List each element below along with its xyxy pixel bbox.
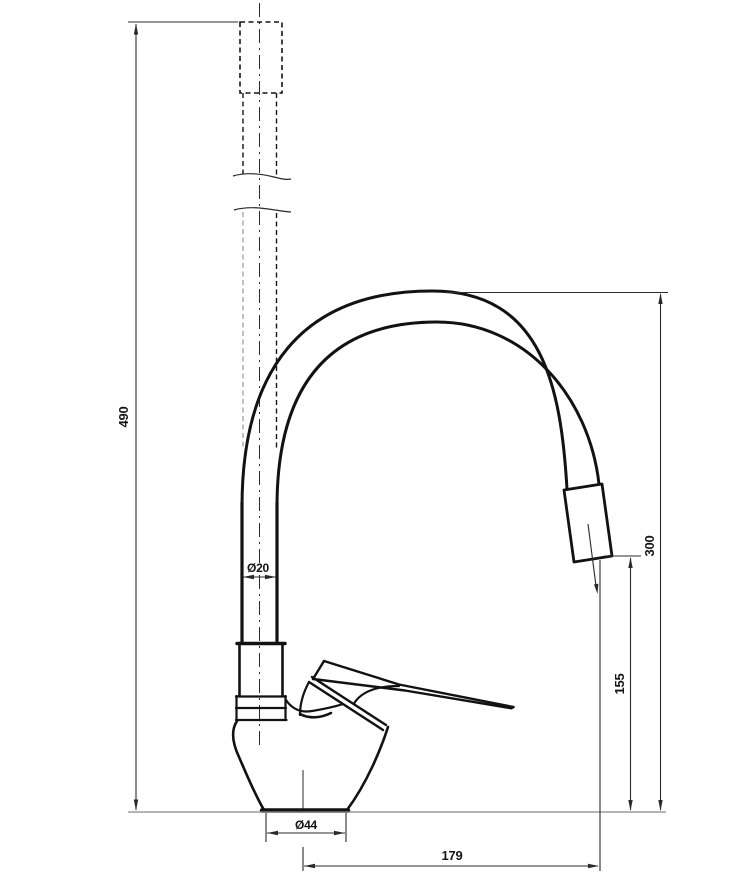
arrowhead-179-right — [588, 864, 599, 868]
arrowhead-44-left — [267, 831, 278, 835]
break-line-bottom — [234, 208, 291, 212]
arrowhead-490-top — [134, 24, 138, 35]
dimension-490 — [128, 22, 238, 810]
arrowhead-155-bottom — [628, 800, 632, 811]
technical-drawing-sheet: 490 300 155 179 Ø44 Ø20 — [0, 0, 743, 892]
spout-inner-curve — [277, 322, 599, 507]
label-outlet-height: 155 — [612, 673, 627, 694]
arrowhead-20-right — [265, 575, 276, 579]
body-right-edge — [347, 727, 388, 810]
body-shoulder-curve — [300, 713, 331, 717]
outlet-under-curve — [286, 700, 343, 712]
nozzle — [564, 484, 612, 562]
label-base-diameter: Ø44 — [295, 818, 318, 832]
arrowhead-20-left — [243, 575, 254, 579]
cap-left-edge — [313, 661, 324, 679]
water-arrowhead — [594, 584, 598, 594]
arrowhead-179-left — [304, 864, 315, 868]
arrowhead-300-top — [658, 293, 662, 304]
hose-end-rect — [240, 22, 282, 93]
arrowhead-490-bottom — [134, 800, 138, 811]
arrowhead-300-bottom — [658, 800, 662, 811]
faucet-outline — [233, 291, 612, 811]
extended-hose-ghost — [233, 22, 291, 450]
faucet-dimension-drawing: 490 300 155 179 Ø44 Ø20 — [0, 0, 743, 892]
dimension-179 — [303, 560, 600, 871]
label-reach: 179 — [441, 848, 462, 863]
label-pipe-diameter: Ø20 — [247, 561, 270, 575]
dimension-300 — [445, 293, 668, 811]
label-spout-top-height: 300 — [642, 535, 657, 556]
break-line-top — [233, 174, 291, 180]
arrowhead-155-top — [628, 557, 632, 568]
arrowhead-44-right — [334, 831, 345, 835]
label-overall-height: 490 — [116, 406, 131, 427]
